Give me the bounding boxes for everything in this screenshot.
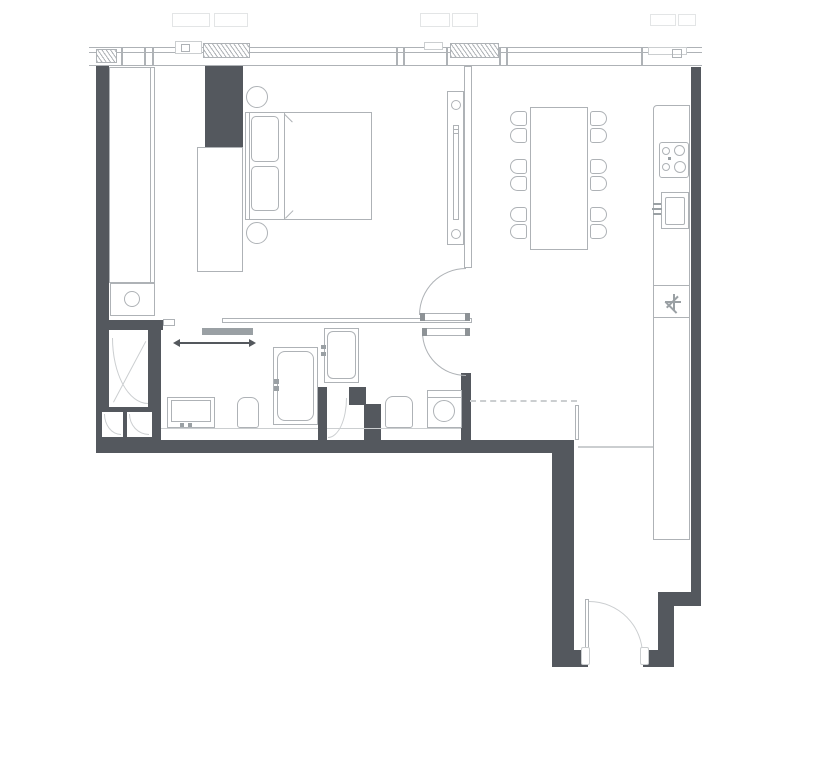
dining-chair — [590, 224, 607, 239]
sink-tap — [652, 208, 662, 210]
shower-door-handle — [274, 386, 279, 391]
cooktop-control — [668, 157, 671, 160]
dining-table — [530, 107, 588, 250]
dining-chair — [510, 128, 527, 143]
partition-end-cap — [163, 319, 175, 326]
sliding-door-panel — [202, 328, 253, 335]
dining-chair — [510, 176, 527, 191]
bathroom-divider-wall — [318, 387, 327, 441]
floor-plan — [0, 0, 814, 768]
bathroom-baseline — [327, 428, 461, 429]
window-handle — [181, 44, 190, 52]
cooktop-burner — [662, 163, 670, 171]
basin-tap — [188, 423, 192, 427]
sink-tap — [653, 213, 661, 215]
sink-tap — [653, 203, 661, 205]
balcony-unit-ghost — [172, 13, 210, 27]
toilet — [385, 396, 413, 428]
bottom-wall — [96, 440, 574, 453]
counter-section-line — [653, 317, 690, 318]
media-unit-knob — [451, 229, 461, 239]
cooktop-burner — [662, 147, 670, 155]
washing-machine-drum — [433, 400, 455, 422]
window-mullion — [396, 48, 398, 65]
balcony-unit-ghost — [214, 13, 248, 27]
entry-corridor-wall — [552, 453, 574, 667]
shower-room-wall-right — [148, 330, 161, 408]
shower-tray — [277, 351, 314, 421]
bedroom-living-partition — [464, 66, 472, 268]
left-exterior-wall — [96, 66, 109, 440]
door-hinge — [465, 313, 470, 321]
window-mullion — [641, 48, 643, 65]
shower-door-handle — [274, 379, 279, 384]
window-vent-grille — [450, 43, 499, 58]
entry-door-arc — [589, 601, 643, 655]
overhead-shelf-dashed — [470, 400, 577, 402]
washing-machine-drum — [124, 291, 140, 307]
sink-basin — [665, 197, 685, 225]
cooktop-burner — [674, 145, 685, 156]
extractor-symbol — [663, 292, 683, 312]
media-unit-knob — [451, 100, 461, 110]
balcony-unit-ghost — [650, 14, 676, 26]
right-wall-step — [658, 592, 701, 606]
bathroom-baseline — [161, 428, 318, 429]
dining-chair — [510, 111, 527, 126]
blanket-fold-line — [284, 113, 285, 219]
dining-chair — [510, 159, 527, 174]
hall-threshold-line — [578, 446, 654, 448]
basin-bowl — [171, 400, 211, 422]
duct-access-swing — [328, 398, 347, 438]
hall-wall — [461, 373, 471, 440]
window-vent-grille — [96, 49, 117, 63]
hall-closet-side — [575, 405, 579, 440]
window-operator-box — [424, 42, 443, 50]
door-hinge — [422, 328, 427, 336]
entry-door-jamb — [581, 647, 590, 665]
toilet — [237, 397, 259, 428]
dining-chair — [510, 207, 527, 222]
shower-unit-handle — [321, 345, 326, 349]
tv-panel — [453, 125, 459, 220]
cooktop-burner — [674, 161, 686, 173]
window-mullion — [152, 48, 154, 65]
dining-chair — [590, 111, 607, 126]
dining-chair — [510, 224, 527, 239]
balcony-unit-ghost — [678, 14, 696, 26]
closet-inner-line — [150, 68, 151, 282]
duct-wall-top — [349, 387, 366, 405]
dining-chair — [590, 207, 607, 222]
bedroom-closet — [109, 67, 155, 283]
pillow — [251, 166, 279, 211]
balcony-unit-ghost — [452, 13, 478, 27]
headboard-line — [249, 113, 250, 219]
bathroom-door-arc — [422, 332, 466, 376]
window-mullion — [144, 48, 146, 65]
entry-door-jamb — [640, 647, 649, 665]
duct-wall-bottom — [364, 404, 381, 441]
dining-chair — [590, 159, 607, 174]
basin-tap — [180, 423, 184, 427]
window-handle — [672, 49, 682, 58]
counter-section-line — [653, 285, 690, 286]
window-mullion — [446, 48, 448, 65]
door-hinge — [465, 328, 470, 336]
wardrobe — [197, 147, 243, 272]
living-room-door-leaf — [420, 313, 470, 321]
bathroom-door-leaf — [422, 328, 470, 336]
window-mullion — [121, 48, 123, 65]
bedroom-column — [205, 66, 243, 147]
shower-unit-handle — [321, 352, 326, 356]
bedside-lamp — [246, 222, 268, 244]
tv-panel-mark — [454, 133, 458, 134]
living-room-door-arc — [419, 268, 466, 315]
door-hinge — [420, 313, 425, 321]
tv-panel-mark — [454, 129, 458, 130]
window-mullion — [403, 48, 405, 65]
window-vent-grille — [203, 43, 250, 58]
window-mullion — [506, 48, 508, 65]
shower-unit-tray — [327, 331, 356, 379]
bedside-lamp — [246, 86, 268, 108]
balcony-unit-ghost — [420, 13, 450, 27]
dining-chair — [590, 176, 607, 191]
shower-room-wall-top — [96, 320, 163, 330]
washer-lid-line — [428, 397, 461, 398]
pillow — [251, 116, 279, 162]
dining-chair — [590, 128, 607, 143]
sliding-direction-arrow — [173, 339, 256, 347]
right-exterior-wall — [691, 67, 701, 594]
window-mullion — [499, 48, 501, 65]
